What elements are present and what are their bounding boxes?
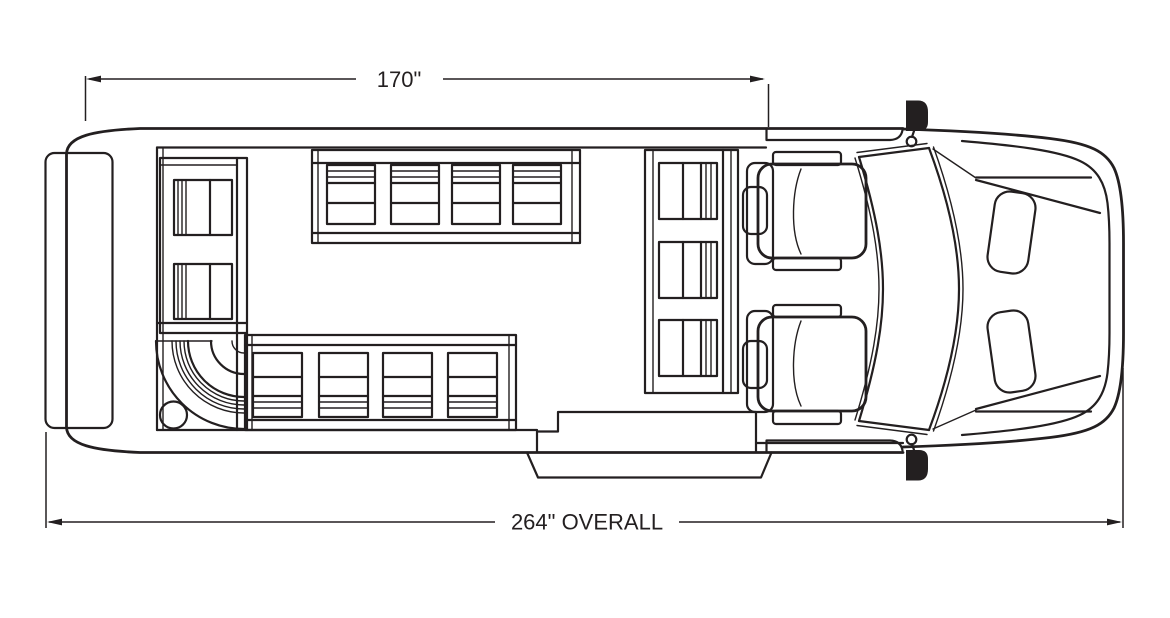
seat-outline <box>659 163 717 219</box>
hood-vent <box>986 309 1038 395</box>
forward-bench <box>645 150 738 393</box>
seat-outline <box>513 165 561 224</box>
arrow-left-icon <box>86 76 101 83</box>
mirror-head <box>906 101 928 132</box>
arrow-right-icon <box>750 76 765 83</box>
bus-floorplan-page: 170" 264" OVERALL <box>0 0 1170 618</box>
rear-cap <box>46 153 113 428</box>
seat-back-slats <box>513 171 561 177</box>
seat-cushion-lines <box>253 377 302 396</box>
seat-back-slats <box>327 171 375 177</box>
windshield-glass-line <box>929 148 959 430</box>
seat-cushion-lines <box>327 183 375 203</box>
corner-outer-arc <box>156 341 244 429</box>
step-well <box>537 412 756 452</box>
seat-outline <box>391 165 439 224</box>
seat-back-slats <box>706 163 711 219</box>
corner-bench <box>156 341 244 429</box>
passenger-seat <box>743 305 866 424</box>
seat-back-slats <box>178 264 186 319</box>
bench-end-rails <box>252 335 509 430</box>
seat-cushion-lines <box>683 320 701 376</box>
seat-cushion-lines <box>513 183 561 203</box>
bench-seat <box>174 264 232 319</box>
seat-cushion-lines <box>391 183 439 203</box>
curb-side-bench <box>245 335 516 430</box>
seat-outline <box>659 320 717 376</box>
seat-cushion-lines <box>683 242 701 298</box>
arrow-left-icon <box>47 519 62 526</box>
a-pillar-lines <box>933 149 976 429</box>
bench-rail-inner <box>653 150 731 393</box>
seat-bolster-line <box>793 169 801 254</box>
bench-seat <box>319 353 368 417</box>
seat-track-bar <box>773 305 841 317</box>
curb-side-mirror <box>906 435 928 481</box>
mirror-head <box>906 450 928 481</box>
bench-rails <box>245 345 516 420</box>
street-side-mirror <box>906 101 928 147</box>
windshield <box>855 144 963 435</box>
body-length-label: 170" <box>377 67 422 92</box>
bench-rails <box>312 163 580 233</box>
seat-track-bar <box>773 411 841 424</box>
seat-track-bar <box>773 258 841 270</box>
dimension-body-length: 170" <box>86 67 769 127</box>
seat-back-slats <box>706 242 711 298</box>
seat-cushion <box>758 164 866 258</box>
entry-door-step <box>527 453 772 478</box>
street-side-bench <box>312 150 580 243</box>
seat-bolster-line <box>793 321 801 406</box>
cab-front <box>903 129 1124 447</box>
bench-seat <box>452 165 500 224</box>
seat-cushion-lines <box>452 183 500 203</box>
bench-seat <box>391 165 439 224</box>
seat-back-slats <box>706 320 711 376</box>
bench-frame <box>245 335 516 430</box>
bench-rail-inner <box>157 165 237 341</box>
seat-back-slats <box>448 402 497 408</box>
bus-floorplan-drawing: 170" 264" OVERALL <box>0 0 1170 618</box>
bench-seat <box>659 242 717 298</box>
bench-seat <box>659 163 717 219</box>
bench-seat <box>513 165 561 224</box>
bench-seat <box>383 353 432 417</box>
seat-back-slats <box>178 180 186 235</box>
mirror-mount-ring <box>907 435 917 445</box>
seat-back-slats <box>452 171 500 177</box>
overall-length-label: 264" OVERALL <box>511 510 663 535</box>
driver-seat <box>743 152 866 270</box>
seat-cushion-lines <box>448 377 497 396</box>
bench-seat <box>327 165 375 224</box>
bench-seat <box>174 180 232 235</box>
seat-back-slats <box>319 402 368 408</box>
corner-slat-arc <box>172 341 244 413</box>
seat-cushion <box>758 317 866 411</box>
bench-seat <box>659 320 717 376</box>
seat-back-slats <box>253 402 302 408</box>
bench-seat <box>253 353 302 417</box>
seat-outline <box>452 165 500 224</box>
seat-cushion-lines <box>319 377 368 396</box>
seat-back-slats <box>383 402 432 408</box>
seat-cushion-lines <box>383 377 432 396</box>
seat-outline <box>327 165 375 224</box>
stanchion-pole <box>160 402 187 429</box>
hood-vent <box>986 190 1038 276</box>
arrow-right-icon <box>1107 519 1122 526</box>
bench-seat <box>448 353 497 417</box>
corner-arc <box>211 341 244 374</box>
seat-back-slats <box>391 171 439 177</box>
corner-slat-arc <box>176 341 244 409</box>
entry-step <box>527 412 772 478</box>
hood-outline <box>962 141 1110 435</box>
seat-outline <box>659 242 717 298</box>
seat-cushion-lines <box>683 163 701 219</box>
